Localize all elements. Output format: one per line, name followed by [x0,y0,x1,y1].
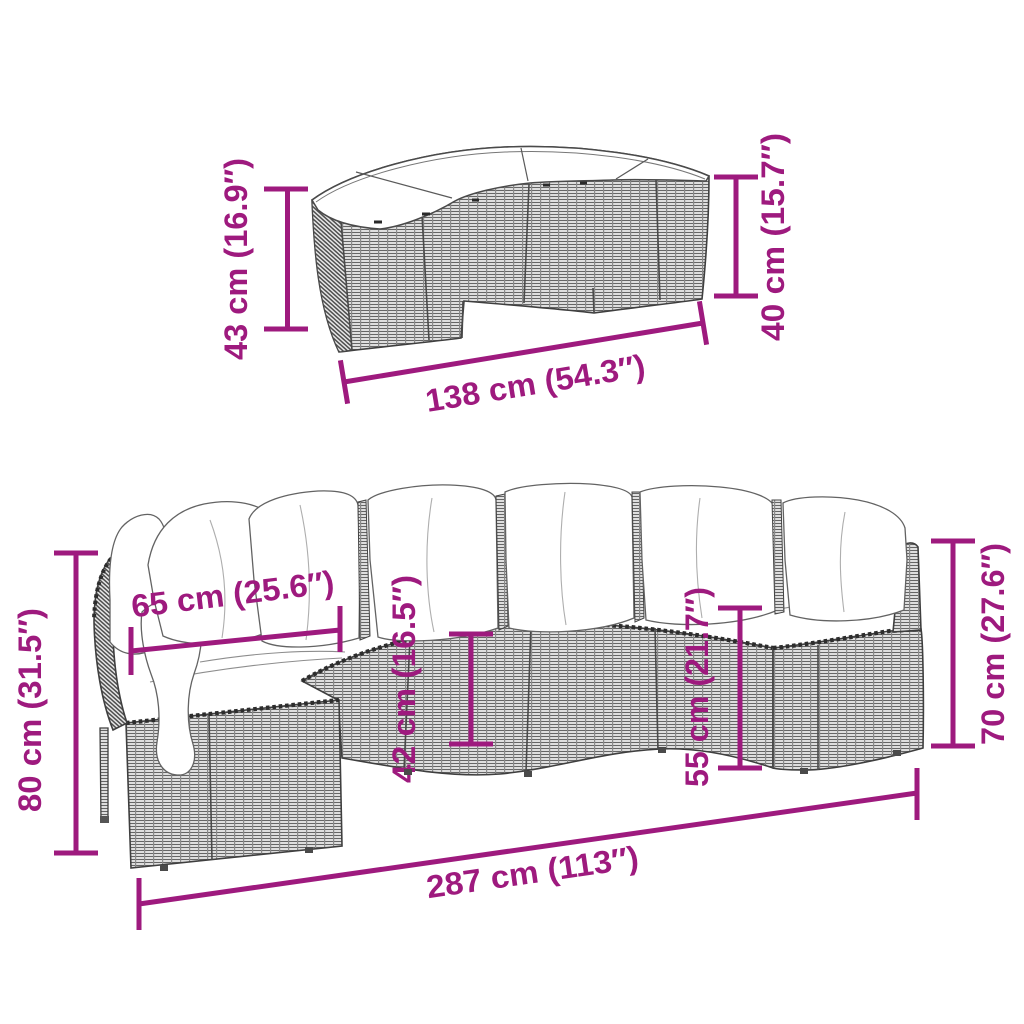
svg-text:42 cm (16.5″): 42 cm (16.5″) [386,575,422,783]
svg-text:43 cm (16.9″): 43 cm (16.9″) [218,158,254,360]
svg-text:80 cm (31.5″): 80 cm (31.5″) [12,608,48,812]
svg-text:40 cm (15.7″): 40 cm (15.7″) [755,133,791,341]
svg-text:70 cm (27.6″): 70 cm (27.6″) [975,543,1011,745]
svg-text:55 cm (21.7″): 55 cm (21.7″) [679,587,715,787]
